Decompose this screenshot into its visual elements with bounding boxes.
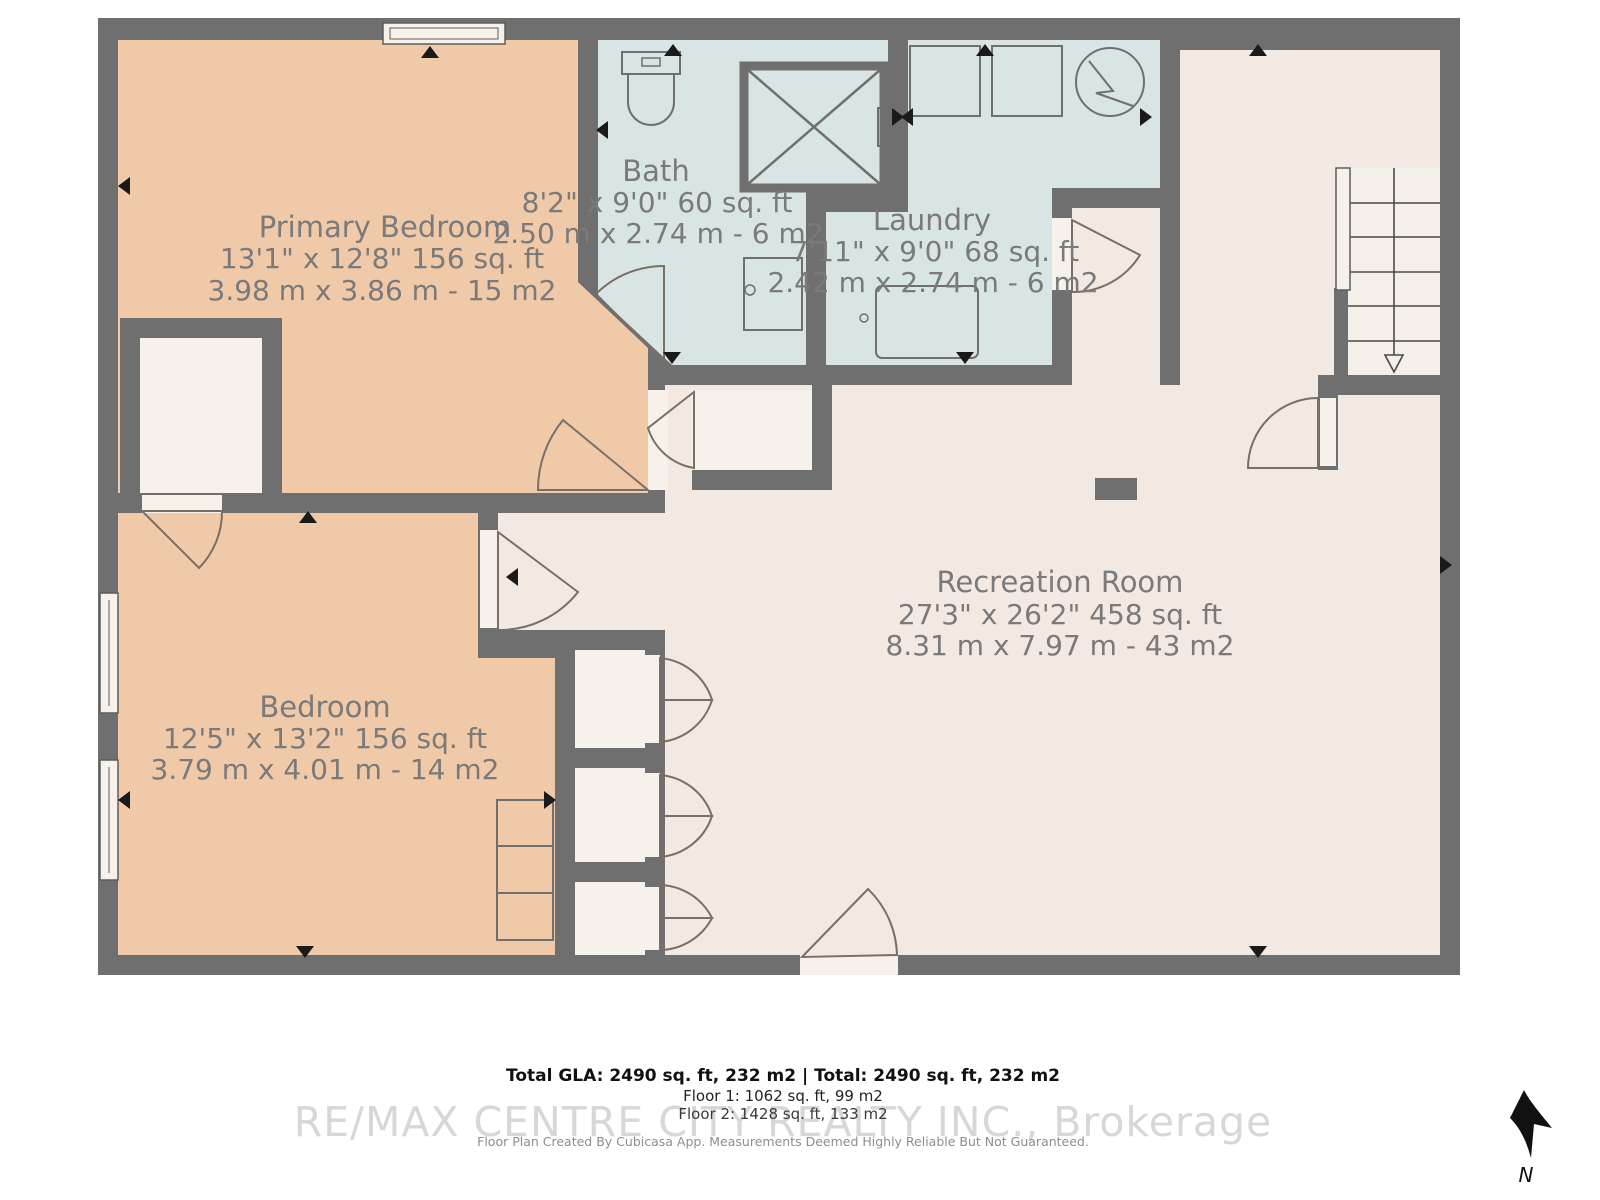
room-recreation-bridge: [1180, 320, 1336, 440]
primary-door-opening: [648, 390, 668, 490]
hall-closet-wall-right: [812, 385, 832, 470]
bedroom-door-opening: [480, 530, 498, 628]
floor-plan-page: Primary Bedroom 13'1" x 12'8" 156 sq. ft…: [0, 0, 1600, 1200]
credit-line: Floor Plan Created By Cubicasa App. Meas…: [0, 1134, 1566, 1149]
hall-closet-wall: [692, 470, 832, 490]
floor2-line: Floor 2: 1428 sq. ft, 133 m2: [0, 1105, 1566, 1123]
total-gla-line: Total GLA: 2490 sq. ft, 232 m2 | Total: …: [0, 1066, 1566, 1086]
bath-label: Bath: [622, 154, 689, 188]
under-stairs-door-leaf: [1320, 398, 1336, 466]
bedroom-label: Bedroom: [259, 690, 390, 724]
closet-cell-1: [575, 650, 645, 748]
closet-cell-3: [575, 882, 645, 955]
north-label: N: [1519, 1163, 1534, 1187]
primary-bedroom-label: Primary Bedroom: [259, 210, 511, 244]
closet2-leaf: [645, 773, 660, 857]
laundry-label: Laundry: [873, 203, 991, 237]
floor-vent: [1095, 478, 1137, 500]
stair-handrail: [1336, 168, 1350, 290]
bedroom-dim-imperial: 12'5" x 13'2" 156 sq. ft: [163, 722, 487, 755]
hall-closet: [692, 390, 812, 470]
primary-closet: [140, 338, 262, 493]
floor1-line: Floor 1: 1062 sq. ft, 99 m2: [0, 1087, 1566, 1105]
stairs: [1336, 168, 1440, 375]
laundry-dim-imperial: 7'11" x 9'0" 68 sq. ft: [791, 235, 1080, 268]
recreation-room-dim-imperial: 27'3" x 26'2" 458 sq. ft: [898, 598, 1222, 631]
bath-dim-metric: 2.50 m x 2.74 m - 6 m2: [492, 217, 823, 250]
primary-bedroom-dim-metric: 3.98 m x 3.86 m - 15 m2: [208, 274, 557, 307]
recreation-room-label: Recreation Room: [937, 565, 1184, 599]
bedroom-dim-metric: 3.79 m x 4.01 m - 14 m2: [151, 753, 500, 786]
bath-dim-imperial: 8'2" x 9'0" 60 sq. ft: [522, 186, 793, 219]
closet1-leaf: [645, 655, 660, 743]
laundry-dim-metric: 2.42 m x 2.74 m - 6 m2: [767, 266, 1098, 299]
hallway: [498, 513, 675, 630]
closet3-leaf: [645, 887, 660, 950]
rec-door-opening: [800, 955, 898, 975]
recreation-room-dim-metric: 8.31 m x 7.97 m - 43 m2: [886, 629, 1235, 662]
floor-plan-drawing: Primary Bedroom 13'1" x 12'8" 156 sq. ft…: [0, 0, 1600, 1200]
window-top: [383, 23, 505, 44]
closet-cell-2: [575, 768, 645, 862]
